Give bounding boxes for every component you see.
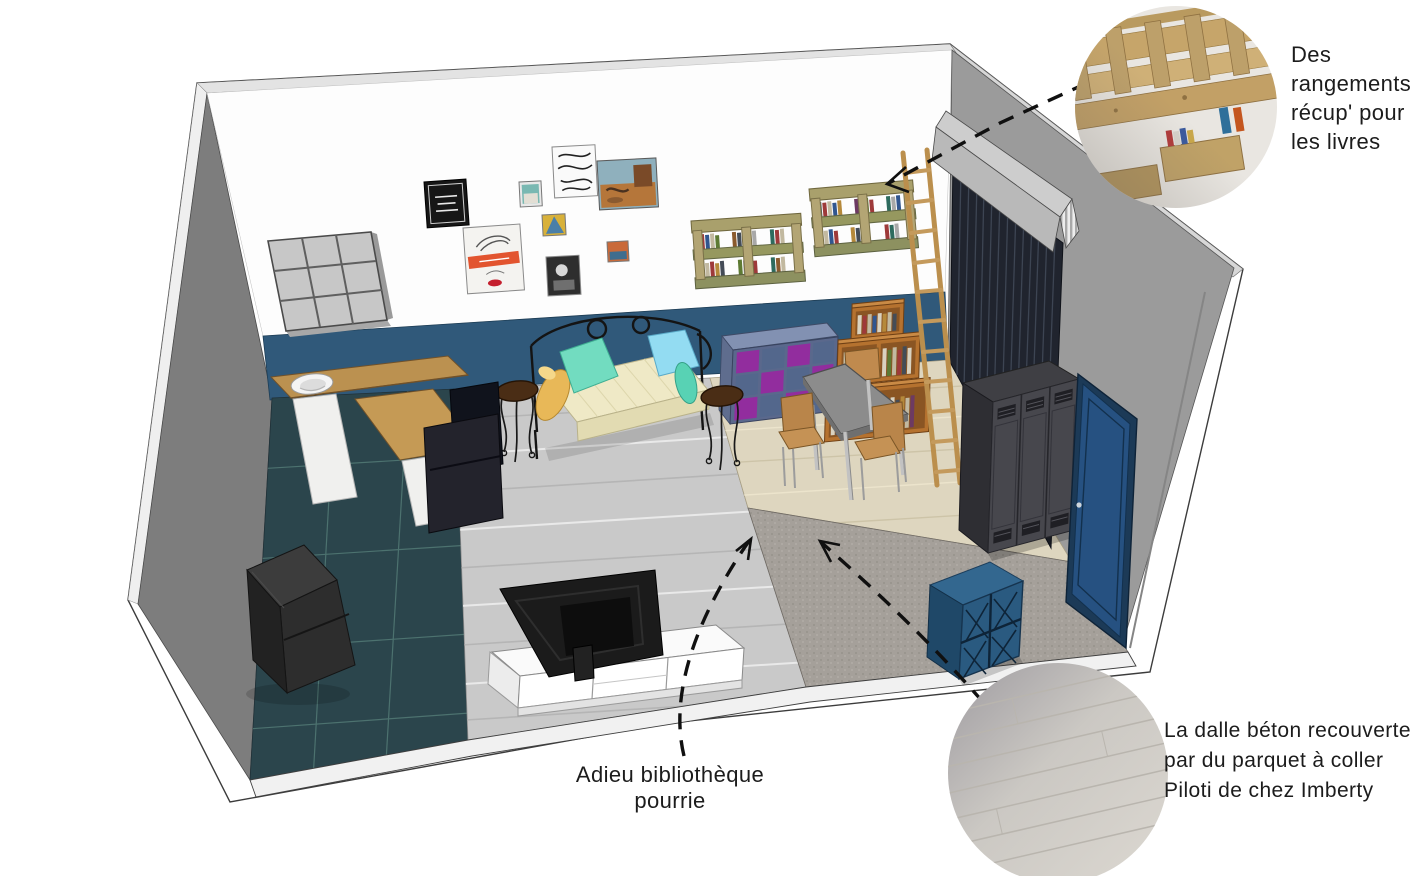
frame-small-yellow: [542, 214, 566, 236]
wall-cube-shelf: [268, 232, 393, 337]
annotation-line: par du parquet à coller: [1164, 746, 1411, 776]
annotation-line: La dalle béton recouverte: [1164, 716, 1411, 746]
entry-door: [1066, 374, 1137, 648]
door-handle: [1076, 502, 1081, 507]
annotation-line: Adieu bibliothèque pourrie: [538, 762, 802, 814]
frame-small-teal: [519, 181, 542, 207]
room-plan-illustration: Des rangements récup' pour les livres La…: [0, 0, 1415, 876]
pallet-shelf-left: [691, 213, 805, 289]
annotation-line: rangements: [1291, 69, 1411, 98]
frame-poster-lips: [463, 224, 524, 294]
frame-bw-sketch: [552, 145, 598, 198]
annotation-pallet-storage: Des rangements récup' pour les livres: [1291, 40, 1411, 156]
frame-dali-painting: [597, 158, 658, 210]
annotation-line: les livres: [1291, 127, 1411, 156]
blue-cube-shelf: [927, 562, 1023, 686]
pallet-shelf-right: [809, 180, 919, 257]
metal-lockers: [959, 361, 1079, 561]
annotation-line: récup' pour: [1291, 98, 1411, 127]
annotation-line: Des: [1291, 40, 1411, 69]
annotation-line: Piloti de chez Imberty: [1164, 776, 1411, 806]
frame-quote-black: [424, 179, 469, 228]
frame-small-orange: [607, 241, 629, 262]
annotation-concrete-floor: La dalle béton recouverte par du parquet…: [1164, 716, 1411, 806]
photo-inset-parquet-floor: [922, 663, 1191, 876]
frame-bw-photo: [546, 255, 581, 296]
annotation-old-bookshelf: Adieu bibliothèque pourrie: [538, 762, 802, 814]
